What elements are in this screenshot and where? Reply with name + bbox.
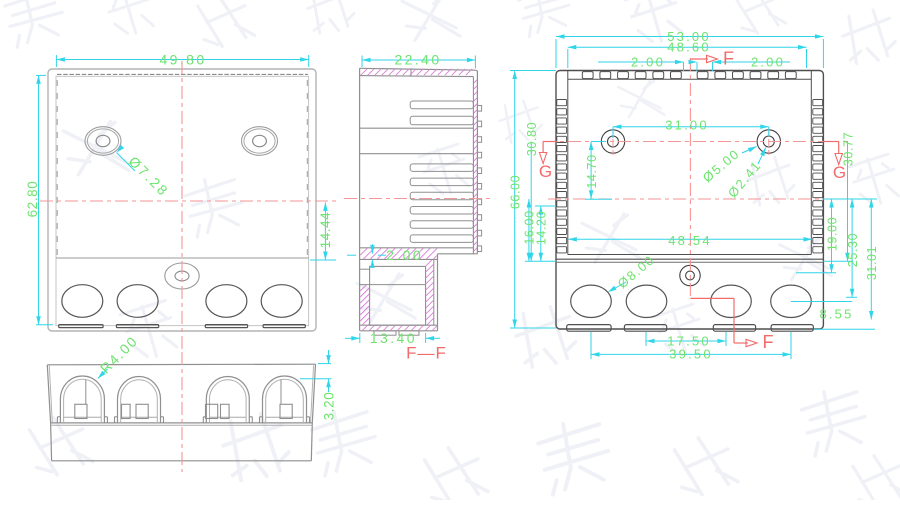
svg-text:66.00: 66.00 (509, 175, 523, 209)
svg-text:14.44: 14.44 (318, 212, 333, 249)
svg-text:2.00: 2.00 (751, 54, 785, 69)
svg-text:14.70: 14.70 (585, 154, 599, 188)
svg-text:48.60: 48.60 (667, 40, 711, 55)
svg-text:48.54: 48.54 (668, 233, 712, 248)
svg-text:G: G (539, 162, 552, 181)
svg-text:2.00: 2.00 (631, 54, 665, 69)
svg-text:25.30: 25.30 (846, 233, 860, 267)
svg-text:8.55: 8.55 (819, 307, 853, 322)
svg-text:F—F: F—F (406, 344, 447, 363)
svg-text:30.80: 30.80 (525, 122, 539, 156)
svg-text:49.80: 49.80 (159, 51, 206, 67)
svg-text:62.80: 62.80 (25, 181, 40, 218)
svg-text:14.20: 14.20 (535, 211, 549, 245)
svg-text:39.50: 39.50 (669, 347, 713, 362)
svg-text:3.20: 3.20 (321, 392, 336, 421)
svg-text:31.01: 31.01 (865, 246, 879, 280)
svg-text:F: F (763, 332, 774, 352)
svg-text:31.00: 31.00 (665, 118, 709, 133)
svg-text:30.77: 30.77 (841, 132, 855, 166)
svg-text:2.00: 2.00 (386, 247, 423, 263)
svg-text:F: F (723, 49, 734, 69)
svg-text:22.40: 22.40 (394, 52, 441, 68)
svg-text:19.00: 19.00 (825, 217, 839, 251)
